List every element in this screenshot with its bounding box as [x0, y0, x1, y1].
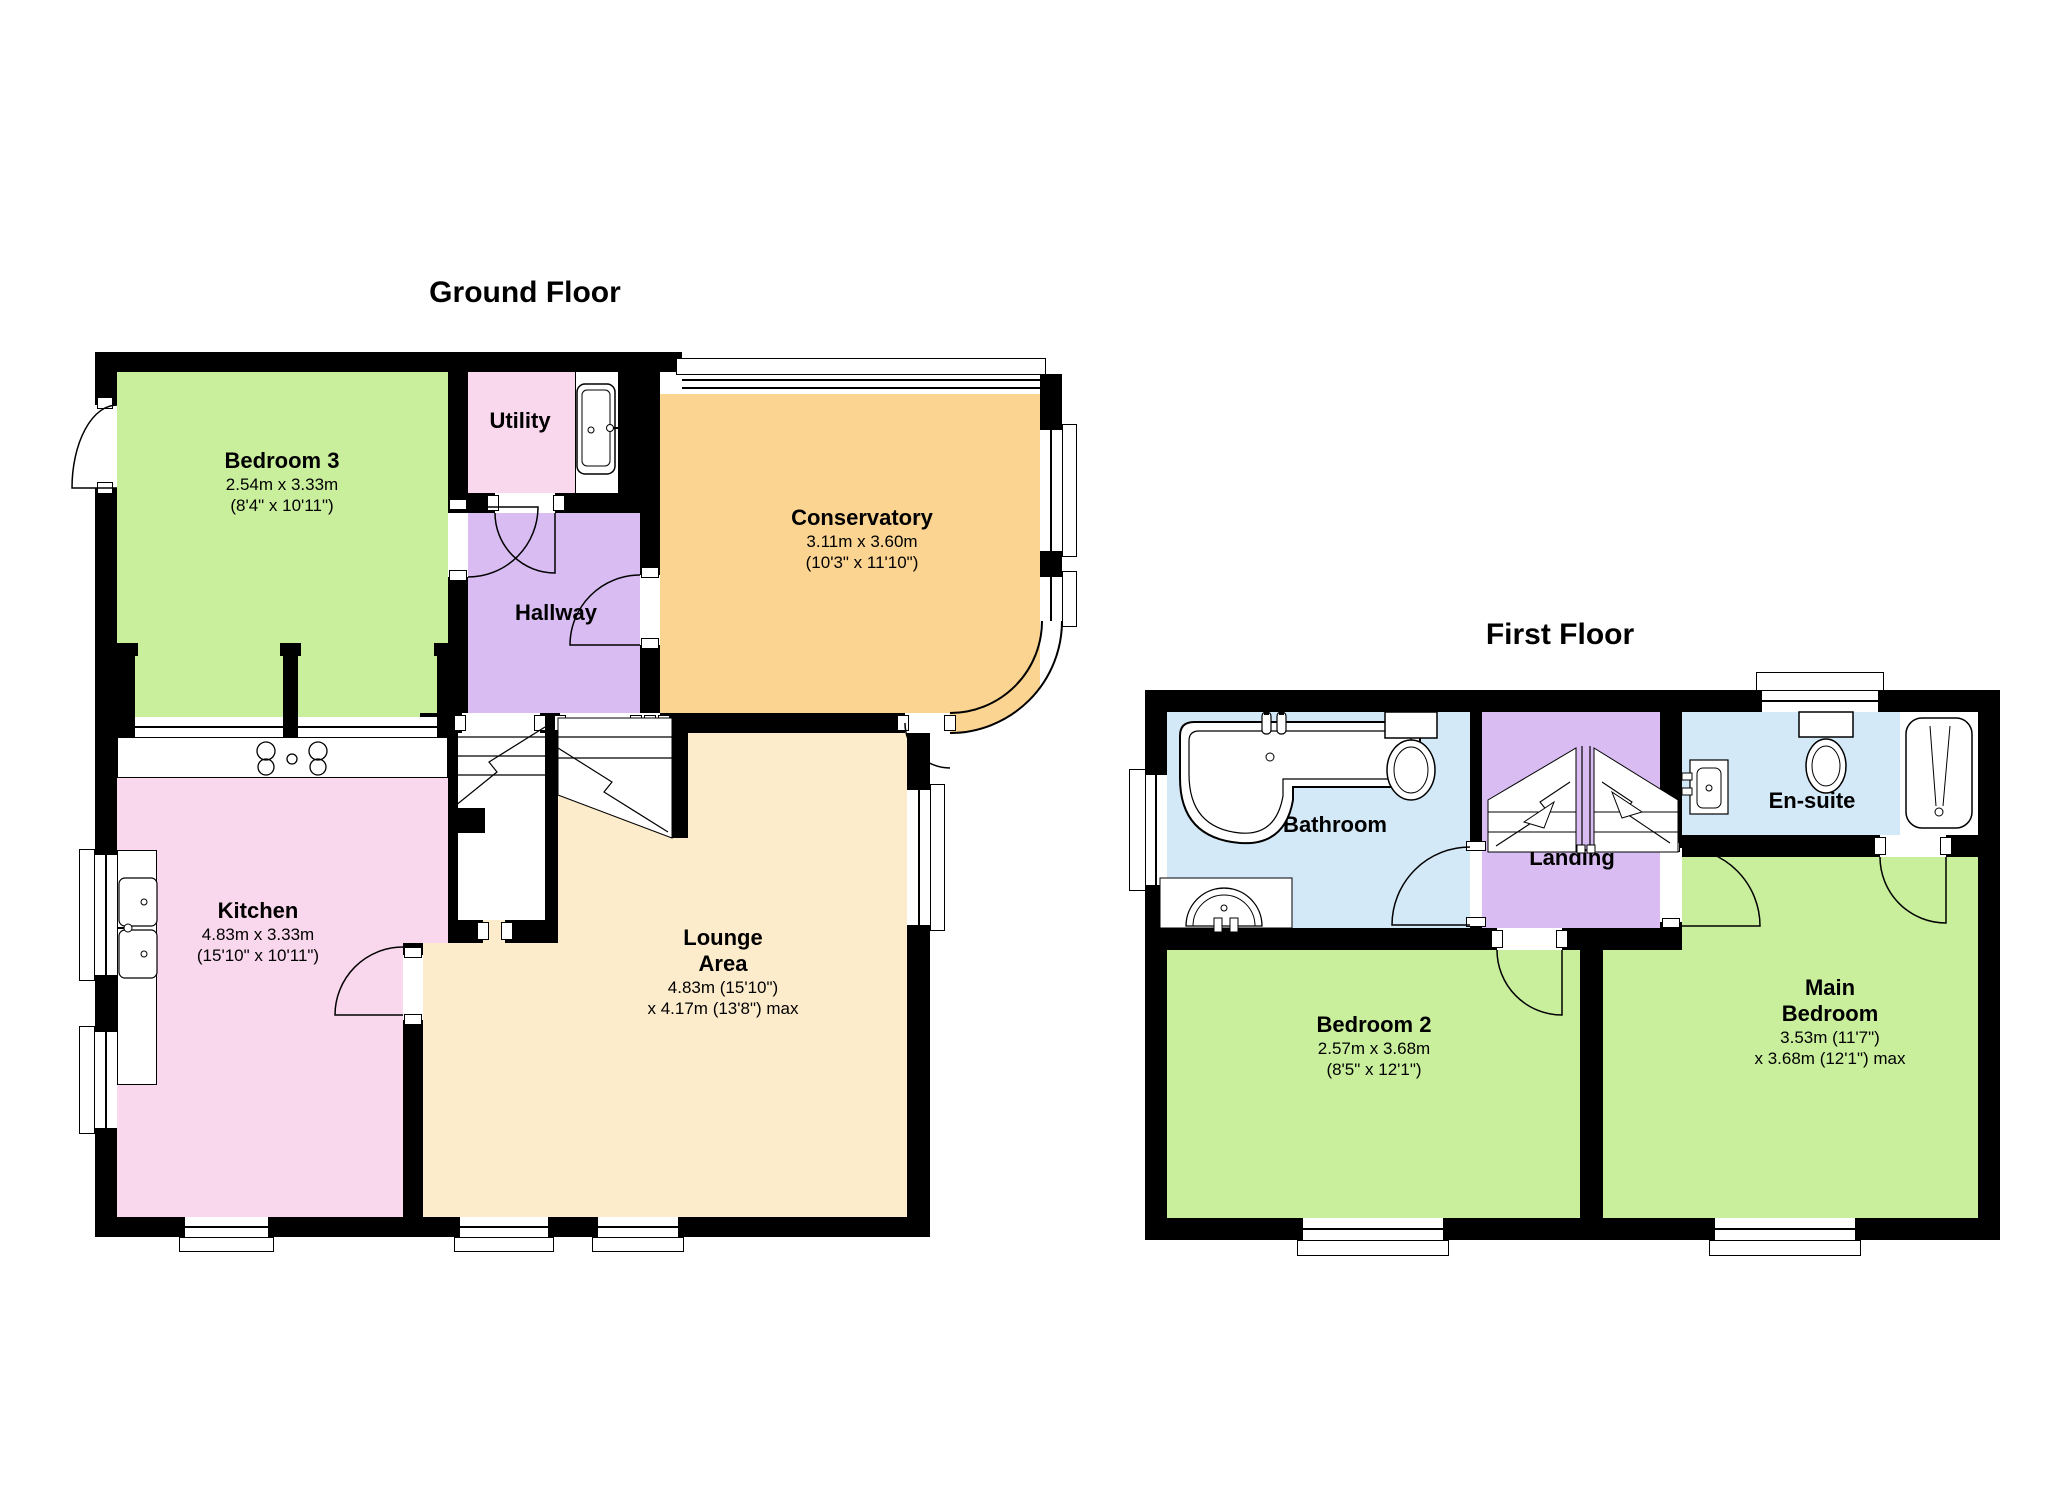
- door-jamb: [1556, 930, 1568, 948]
- door-jamb: [630, 715, 642, 731]
- door-jamb: [944, 715, 956, 731]
- window-sill: [1129, 769, 1146, 891]
- window: [1145, 775, 1167, 885]
- window: [1715, 1218, 1855, 1240]
- door-jamb: [1491, 930, 1503, 948]
- bedroom3-bay-left: [135, 656, 283, 717]
- window: [598, 1217, 678, 1237]
- window: [1040, 577, 1062, 621]
- window-sill: [1062, 424, 1077, 557]
- window: [1303, 1218, 1443, 1240]
- wall-segment: [1145, 690, 1762, 712]
- door-jamb: [1466, 841, 1486, 851]
- conservatory-window: [682, 374, 1040, 394]
- window: [460, 1217, 548, 1237]
- door-jamb: [97, 397, 113, 409]
- door-jamb: [1874, 837, 1886, 855]
- conservatory-label: Conservatory 3.11m x 3.60m (10'3" x 11'1…: [791, 505, 933, 573]
- main-bedroom-label: Main Bedroom 3.53m (11'7") x 3.68m (12'1…: [1755, 975, 1906, 1069]
- window: [95, 855, 117, 975]
- bedroom2-room: [1167, 950, 1580, 1218]
- utility-sink-nook: [575, 372, 618, 493]
- door-jamb: [1940, 837, 1952, 855]
- door-jamb: [1466, 917, 1486, 927]
- window: [907, 790, 930, 925]
- window-sill: [1297, 1240, 1449, 1256]
- door-jamb: [644, 715, 656, 731]
- window: [95, 1032, 117, 1128]
- window-sill: [454, 1237, 554, 1252]
- bedroom3-bay-right: [298, 656, 437, 717]
- window-sill: [179, 1237, 274, 1252]
- window: [298, 717, 437, 737]
- ground-floor-title: Ground Floor: [429, 276, 621, 310]
- first-floor-title: First Floor: [1486, 618, 1634, 652]
- door-jamb: [641, 638, 659, 649]
- wall-segment: [95, 352, 682, 372]
- window: [135, 717, 283, 737]
- door-jamb: [897, 715, 909, 731]
- door-jamb: [477, 922, 489, 940]
- door-jamb: [553, 495, 565, 511]
- window-sill: [676, 358, 1046, 375]
- kitchen-label: Kitchen 4.83m x 3.33m (15'10" x 10'11"): [197, 898, 319, 966]
- kitchen-counter-left: [117, 850, 157, 1085]
- door-jamb: [534, 715, 546, 731]
- window-sill: [1709, 1240, 1861, 1256]
- window-sill: [1756, 672, 1884, 691]
- stairwell: [455, 718, 545, 920]
- door-jamb: [449, 570, 467, 581]
- ensuite-label: En-suite: [1769, 788, 1856, 814]
- window: [1040, 430, 1062, 551]
- door-jamb: [404, 947, 422, 958]
- window-sill: [79, 849, 95, 981]
- door-jamb: [1662, 918, 1680, 928]
- door-jamb: [454, 715, 466, 731]
- door-jamb: [449, 499, 467, 510]
- bedroom2-label: Bedroom 2 2.57m x 3.68m (8'5" x 12'1"): [1317, 1012, 1432, 1080]
- door-jamb: [1662, 842, 1680, 852]
- shower-fixture: [1906, 718, 1972, 828]
- lounge-label: Lounge Area 4.83m (15'10") x 4.17m (13'8…: [648, 925, 799, 1019]
- door-jamb: [554, 715, 566, 731]
- window-sill: [79, 1026, 95, 1134]
- ensuite-room: [1682, 712, 1900, 835]
- bedroom3-label: Bedroom 3 2.54m x 3.33m (8'4" x 10'11"): [225, 448, 340, 516]
- kitchen-counter-top: [117, 737, 448, 778]
- door-jamb: [501, 922, 513, 940]
- hallway-label: Hallway: [515, 600, 597, 626]
- window: [185, 1217, 268, 1237]
- bathroom-label: Bathroom: [1283, 812, 1387, 838]
- door-jamb: [641, 567, 659, 578]
- window-sill: [592, 1237, 684, 1252]
- door-jamb: [404, 1014, 422, 1025]
- landing-room: [1482, 712, 1660, 928]
- landing-label: Landing: [1529, 845, 1615, 871]
- window: [1762, 690, 1878, 712]
- utility-label: Utility: [489, 408, 550, 434]
- door-jamb: [97, 482, 113, 494]
- window-sill: [1062, 571, 1077, 627]
- door-jamb: [658, 715, 670, 731]
- window-sill: [930, 784, 945, 931]
- door-jamb: [487, 495, 499, 511]
